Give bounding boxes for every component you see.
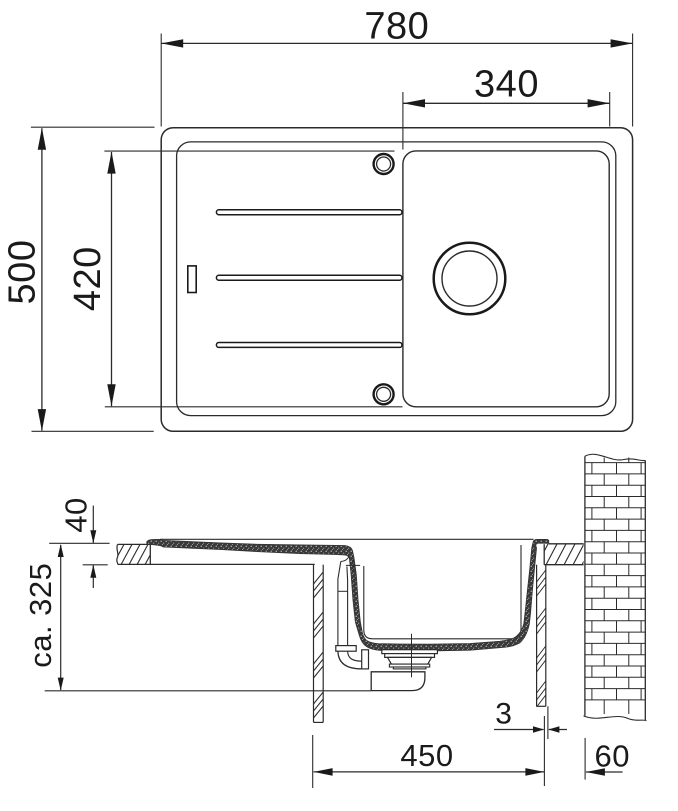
svg-text:340: 340 [474,64,539,106]
svg-text:3: 3 [495,698,512,731]
svg-text:500: 500 [2,240,44,305]
svg-text:40: 40 [59,497,94,532]
svg-text:450: 450 [400,738,453,773]
svg-text:780: 780 [364,6,429,48]
svg-text:ca. 325: ca. 325 [23,563,58,668]
svg-text:60: 60 [594,739,629,774]
svg-text:420: 420 [67,246,109,311]
